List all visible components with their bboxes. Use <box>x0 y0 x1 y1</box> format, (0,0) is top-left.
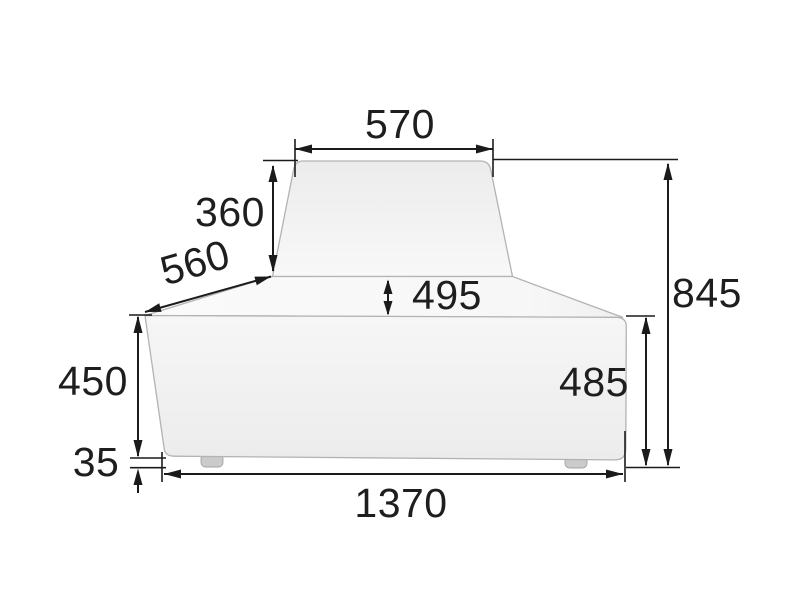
arrowhead <box>642 449 651 467</box>
seat-front-face <box>145 316 626 460</box>
arrowhead <box>664 449 673 467</box>
arrowhead <box>134 316 143 334</box>
dim-label-seat-top-depth: 495 <box>412 272 482 318</box>
arrowhead <box>606 470 623 479</box>
seat-top-face <box>145 277 623 318</box>
arrowhead <box>642 317 651 335</box>
dim-foot-height: 35 <box>73 439 166 493</box>
arrowhead <box>269 165 278 182</box>
dim-label-seat-height: 450 <box>58 358 128 404</box>
arrowhead <box>664 163 673 181</box>
dim-label-body-height: 485 <box>559 359 629 405</box>
drawing-canvas: 570 360 560 495 845 485 <box>0 0 800 600</box>
arrowhead <box>134 469 143 486</box>
dim-label-foot-height: 35 <box>73 439 120 485</box>
arrowhead <box>476 145 493 154</box>
dim-label-overall-height: 845 <box>672 270 742 316</box>
dim-label-overall-width: 1370 <box>354 480 447 526</box>
dim-seat-height: 450 <box>58 315 152 458</box>
dim-label-backrest-height: 360 <box>195 189 265 235</box>
arrowhead <box>295 145 312 154</box>
dim-label-side-depth: 560 <box>155 231 235 294</box>
arrowhead <box>164 470 181 479</box>
dimension-diagram: 570 360 560 495 845 485 <box>0 0 800 600</box>
arrowhead <box>145 303 162 312</box>
dim-label-top-width: 570 <box>365 101 435 147</box>
backrest-face <box>273 161 513 277</box>
arrowhead <box>134 440 143 458</box>
